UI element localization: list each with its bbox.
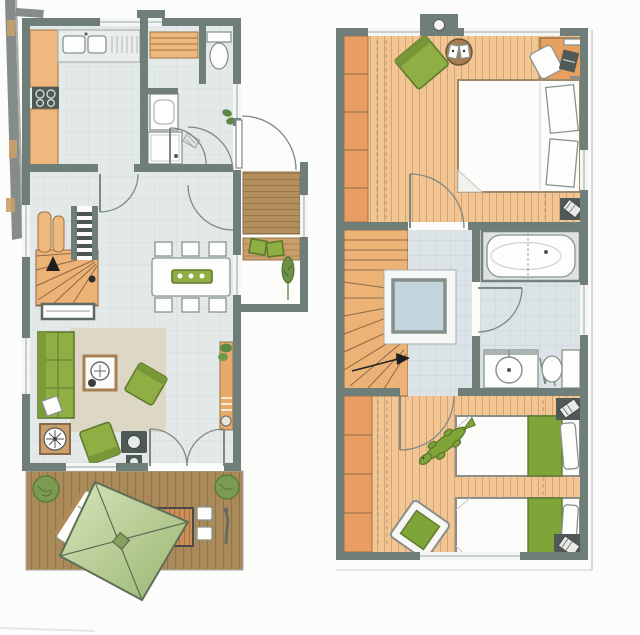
upper-floor-plan [336,14,592,570]
kitchen-counter-lower [30,109,58,165]
window-left-living [22,338,30,394]
blanket-1 [528,416,562,476]
french-door-opening [148,463,224,471]
pillow-1 [546,85,579,134]
window-left-hall [22,205,30,257]
newel-post [89,276,96,283]
uf-window-bath-right [580,285,588,335]
dining-chairs-bottom [155,298,226,312]
dining-chairs-top [155,242,226,256]
uf-window-master-right [580,150,588,190]
kitchen-bath-divider [140,26,148,172]
window-dining [233,255,241,295]
wardrobe-2 [53,216,64,252]
corner-unit-kids-top [556,398,584,420]
uf-wall-master [468,222,580,230]
toilet-tank [207,32,231,42]
washing-machine [148,132,182,164]
uf-window-kids-bottom [420,552,520,560]
sauna-bench [150,32,198,58]
sink-bowl-right [88,36,106,53]
bench-cushion-1 [249,239,267,256]
chimney-opening [434,20,445,31]
knee-wall-master [344,36,368,222]
entrance-door-leaf [236,120,242,168]
sideboard [42,304,94,319]
coffee-table [84,356,116,390]
porch-wall-bottom [238,304,308,312]
window-top-1 [100,18,140,26]
window-bottom-living [66,463,116,471]
kitchen-counter-upper [30,30,58,87]
porch-bench [243,238,300,260]
uf-window-top-left [368,28,420,36]
bench-cushion-2 [266,241,284,257]
sink-tap [84,32,87,35]
gf-chimney-tab [137,10,165,19]
sink-bowl-left [63,36,85,53]
pillow-2 [546,139,578,187]
table-dishes [178,274,205,279]
side-table-with-books [446,39,472,65]
cooktop [32,87,59,109]
uf-window-top-right [464,28,560,36]
shelf-with-plant [218,342,233,430]
shower [384,270,456,344]
shower-glass [393,280,445,332]
wood-stove [40,424,70,454]
porch-deck [243,172,300,234]
washbasin-bowl [154,100,174,124]
sofa [38,332,74,418]
window-top-2 [148,18,162,26]
terrace-shrub-right [215,475,239,499]
floor-plan-drawing [0,0,640,635]
wardrobe-1 [38,212,51,252]
window-porch [300,195,308,237]
uf-washbasin [484,350,538,388]
double-bed [458,80,580,192]
bathtub [482,231,580,281]
uf-bath-wall [472,336,480,396]
toilet-bowl [210,43,228,69]
window-right-kitchen [233,84,241,118]
uf-wall-left [336,28,344,560]
kids-pillow-1 [560,422,579,469]
toilet-partition [199,26,206,84]
floor-plan-page [0,0,640,635]
terrace-shrub-left [33,476,59,502]
